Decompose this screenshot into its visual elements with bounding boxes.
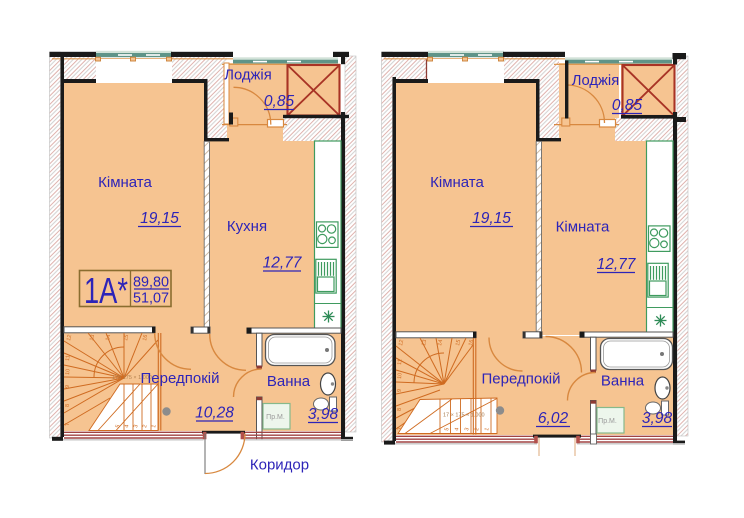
svg-text:11: 11 xyxy=(65,355,71,361)
svg-text:13: 13 xyxy=(89,334,96,341)
svg-text:Передпокій: Передпокій xyxy=(141,370,220,387)
svg-text:19,15: 19,15 xyxy=(140,210,179,227)
svg-text:7: 7 xyxy=(397,427,403,430)
svg-text:3,98: 3,98 xyxy=(642,410,673,427)
svg-text:Лоджія: Лоджія xyxy=(224,68,271,84)
svg-text:8: 8 xyxy=(65,404,71,407)
svg-text:7: 7 xyxy=(65,423,71,426)
svg-text:8: 8 xyxy=(397,408,403,411)
svg-text:9: 9 xyxy=(397,389,403,392)
svg-text:13: 13 xyxy=(421,339,428,346)
svg-text:12: 12 xyxy=(398,339,405,346)
svg-text:Коридор: Коридор xyxy=(250,457,309,474)
svg-text:89,80: 89,80 xyxy=(133,275,169,291)
svg-text:10: 10 xyxy=(397,373,404,380)
svg-text:14: 14 xyxy=(105,334,112,341)
svg-text:15: 15 xyxy=(123,334,130,341)
svg-text:12,77: 12,77 xyxy=(263,255,303,272)
svg-text:1А*: 1А* xyxy=(84,270,128,311)
svg-text:19,15: 19,15 xyxy=(472,210,511,227)
svg-text:6,02: 6,02 xyxy=(538,410,569,427)
svg-text:Ванна: Ванна xyxy=(267,373,311,390)
svg-text:12,77: 12,77 xyxy=(597,256,637,273)
svg-text:Кімната: Кімната xyxy=(556,219,610,236)
svg-text:0,85: 0,85 xyxy=(264,93,295,110)
svg-text:Ванна: Ванна xyxy=(601,373,645,390)
svg-text:16: 16 xyxy=(468,339,475,346)
svg-text:Лоджія: Лоджія xyxy=(572,73,619,89)
svg-text:3,98: 3,98 xyxy=(308,406,339,423)
svg-text:Пр.М.: Пр.М. xyxy=(266,414,285,421)
svg-text:17 × 175 × 1.000: 17 × 175 × 1.000 xyxy=(443,413,485,419)
svg-text:51,07: 51,07 xyxy=(133,291,169,307)
svg-text:9: 9 xyxy=(65,385,71,388)
svg-text:0,85: 0,85 xyxy=(612,97,643,114)
svg-text:14: 14 xyxy=(437,339,444,346)
svg-text:Пр.М.: Пр.М. xyxy=(598,418,617,425)
svg-text:Кухня: Кухня xyxy=(227,218,267,235)
svg-text:16: 16 xyxy=(142,334,149,341)
svg-text:15: 15 xyxy=(455,339,462,346)
svg-text:10: 10 xyxy=(65,369,72,376)
svg-text:Кімната: Кімната xyxy=(98,174,152,191)
svg-text:Передпокій: Передпокій xyxy=(482,371,561,388)
svg-text:11: 11 xyxy=(397,359,403,365)
svg-text:Кімната: Кімната xyxy=(430,174,484,191)
svg-text:10,28: 10,28 xyxy=(195,405,234,422)
svg-text:12: 12 xyxy=(66,334,73,341)
